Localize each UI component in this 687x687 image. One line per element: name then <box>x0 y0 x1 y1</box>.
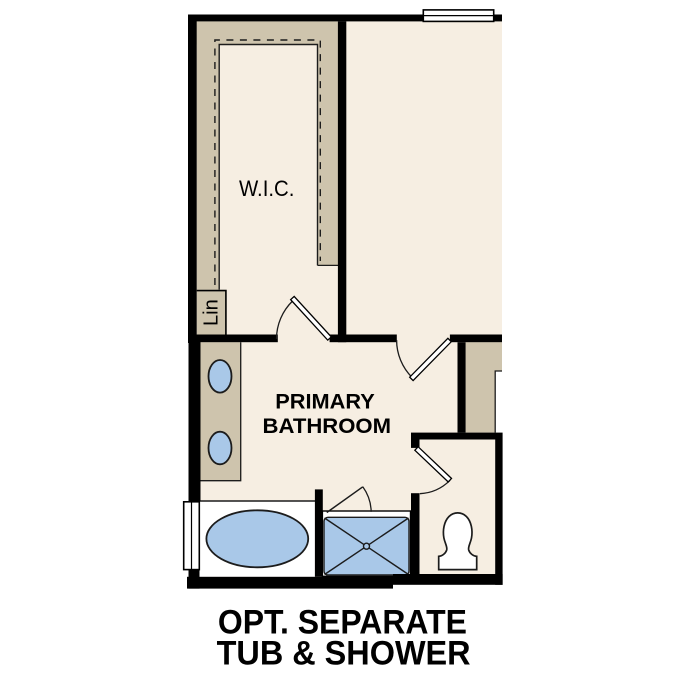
svg-text:PRIMARY: PRIMARY <box>275 389 375 413</box>
svg-text:W.I.C.: W.I.C. <box>239 176 295 201</box>
svg-text:Lin: Lin <box>201 299 223 326</box>
svg-text:BATHROOM: BATHROOM <box>263 414 392 438</box>
svg-text:TUB & SHOWER: TUB & SHOWER <box>217 635 471 673</box>
